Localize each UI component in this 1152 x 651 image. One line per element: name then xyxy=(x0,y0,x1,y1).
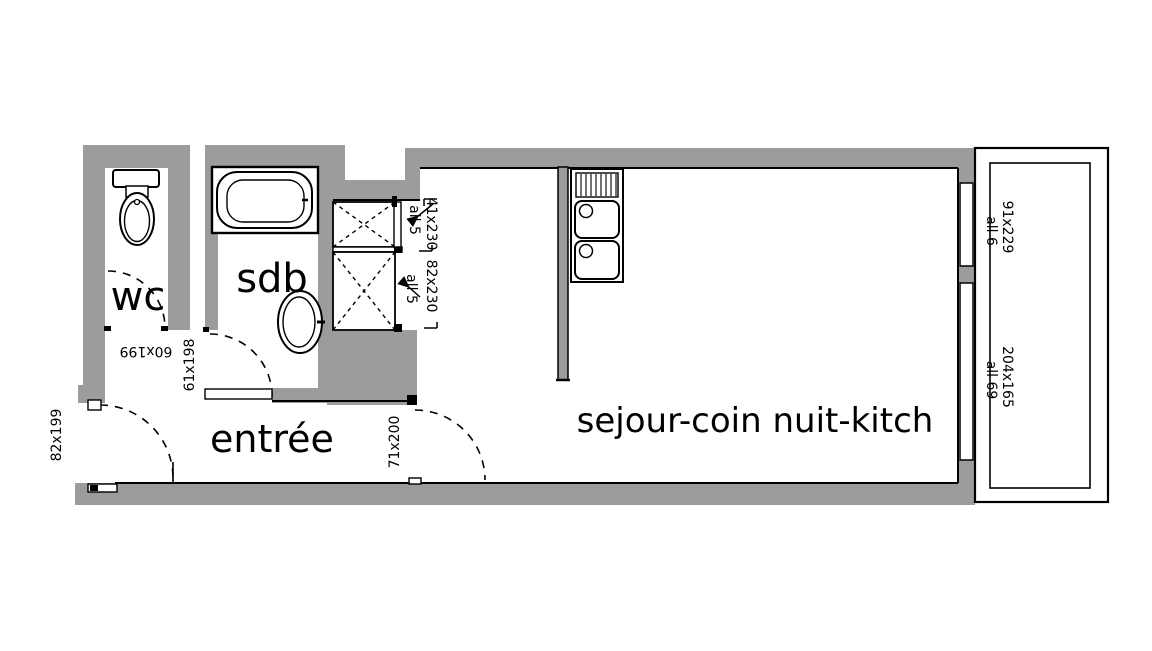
floor-plan-drawing: wc sdb entrée sejour-coin nuit-kitch 60x… xyxy=(0,0,1152,651)
wall-right-top xyxy=(958,148,975,183)
balcony-outer xyxy=(975,148,1108,502)
entry-door-arc xyxy=(100,405,173,478)
wall-right-bottom xyxy=(958,460,975,505)
wall-top-main xyxy=(405,148,975,168)
dim-label-wc-door: 60x199 xyxy=(120,343,173,359)
wall-sdb-corner xyxy=(318,168,345,200)
sdb-door-arc xyxy=(210,334,272,396)
bathtub-icon xyxy=(212,167,318,233)
labels: wc sdb entrée sejour-coin nuit-kitch 60x… xyxy=(49,198,1015,469)
sdb-door-threshold xyxy=(205,389,272,399)
dim-label-window-top-sill: all 6 xyxy=(983,216,999,246)
wall-closet-block xyxy=(327,330,417,405)
closet-small-door xyxy=(394,202,401,247)
dim-label-closet-small-sill: all 5 xyxy=(406,205,422,235)
sejour-door-arc xyxy=(415,410,485,480)
wall-left-wc xyxy=(83,145,105,390)
room-label-sdb: sdb xyxy=(236,256,308,302)
balcony xyxy=(975,148,1108,502)
closet-small-icon xyxy=(333,202,395,247)
wall-bottom xyxy=(75,483,975,505)
dim-label-window-top: 91x229 xyxy=(999,201,1015,254)
wall-right-wc xyxy=(168,145,190,330)
kitchen xyxy=(556,167,623,380)
closets xyxy=(333,196,402,332)
dim-label-sdb-door: 61x198 xyxy=(182,339,198,392)
wc-door-jamb-right xyxy=(161,326,168,331)
wc-door-jamb-left xyxy=(104,326,111,331)
kitchen-partition xyxy=(558,167,568,380)
closet-large-icon xyxy=(333,252,395,330)
sdb-door-jamb xyxy=(203,327,209,332)
dim-label-closet-large-sill: all 5 xyxy=(403,274,419,304)
dim-label-window-bottom: 204x165 xyxy=(999,346,1015,408)
window-bottom xyxy=(960,283,973,460)
wall-right-pier xyxy=(958,266,975,283)
closet-jamb-bottom xyxy=(394,324,402,332)
dim-label-window-bottom-sill: all 69 xyxy=(983,361,999,400)
dim-label-closet-large: 82x230 xyxy=(423,260,439,313)
room-label-entree: entrée xyxy=(210,417,334,461)
closet-jamb-top xyxy=(392,196,397,207)
kitchen-sink-icon xyxy=(571,169,623,282)
windows xyxy=(960,183,973,460)
entry-door-hinge xyxy=(88,400,101,410)
room-label-wc: wc xyxy=(111,274,166,320)
toilet-icon xyxy=(113,170,159,245)
floor-plan: wc sdb entrée sejour-coin nuit-kitch 60x… xyxy=(0,0,1152,651)
dim-label-sejour-door: 71x200 xyxy=(387,416,403,469)
dim-label-closet-small: 41x230 xyxy=(423,198,439,251)
dim-label-entry-door: 82x199 xyxy=(49,409,65,462)
window-top xyxy=(960,183,973,266)
entry-threshold-mark xyxy=(90,485,98,491)
room-label-sejour: sejour-coin nuit-kitch xyxy=(577,401,934,441)
sejour-door-jamb-bottom xyxy=(409,478,421,484)
sejour-door-jamb-top xyxy=(407,395,417,405)
